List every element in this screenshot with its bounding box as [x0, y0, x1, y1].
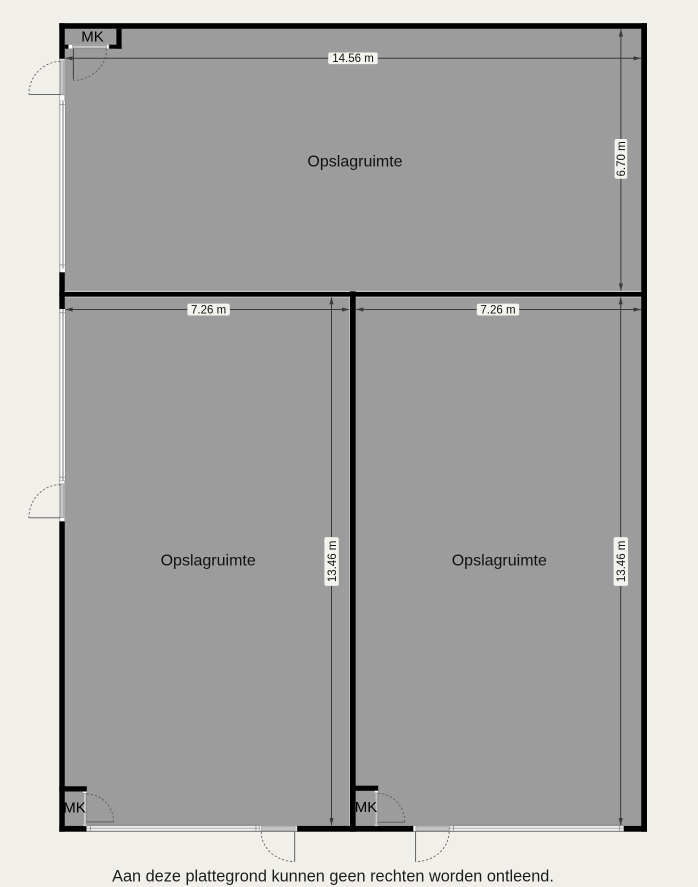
svg-text:14.56 m: 14.56 m — [332, 53, 374, 65]
svg-text:Aan deze plattegrond kunnen ge: Aan deze plattegrond kunnen geen rechten… — [112, 868, 554, 886]
svg-text:6.70 m: 6.70 m — [616, 141, 628, 176]
svg-text:Opslagruimte: Opslagruimte — [307, 154, 402, 171]
svg-text:MK: MK — [355, 799, 378, 816]
svg-text:7.26 m: 7.26 m — [191, 304, 226, 316]
svg-text:Opslagruimte: Opslagruimte — [161, 553, 256, 570]
svg-text:Opslagruimte: Opslagruimte — [452, 553, 547, 570]
svg-text:7.26 m: 7.26 m — [480, 304, 515, 316]
svg-text:MK: MK — [81, 28, 104, 45]
svg-text:13.46 m: 13.46 m — [616, 541, 628, 583]
svg-text:MK: MK — [63, 800, 86, 817]
svg-text:13.46 m: 13.46 m — [327, 541, 339, 583]
